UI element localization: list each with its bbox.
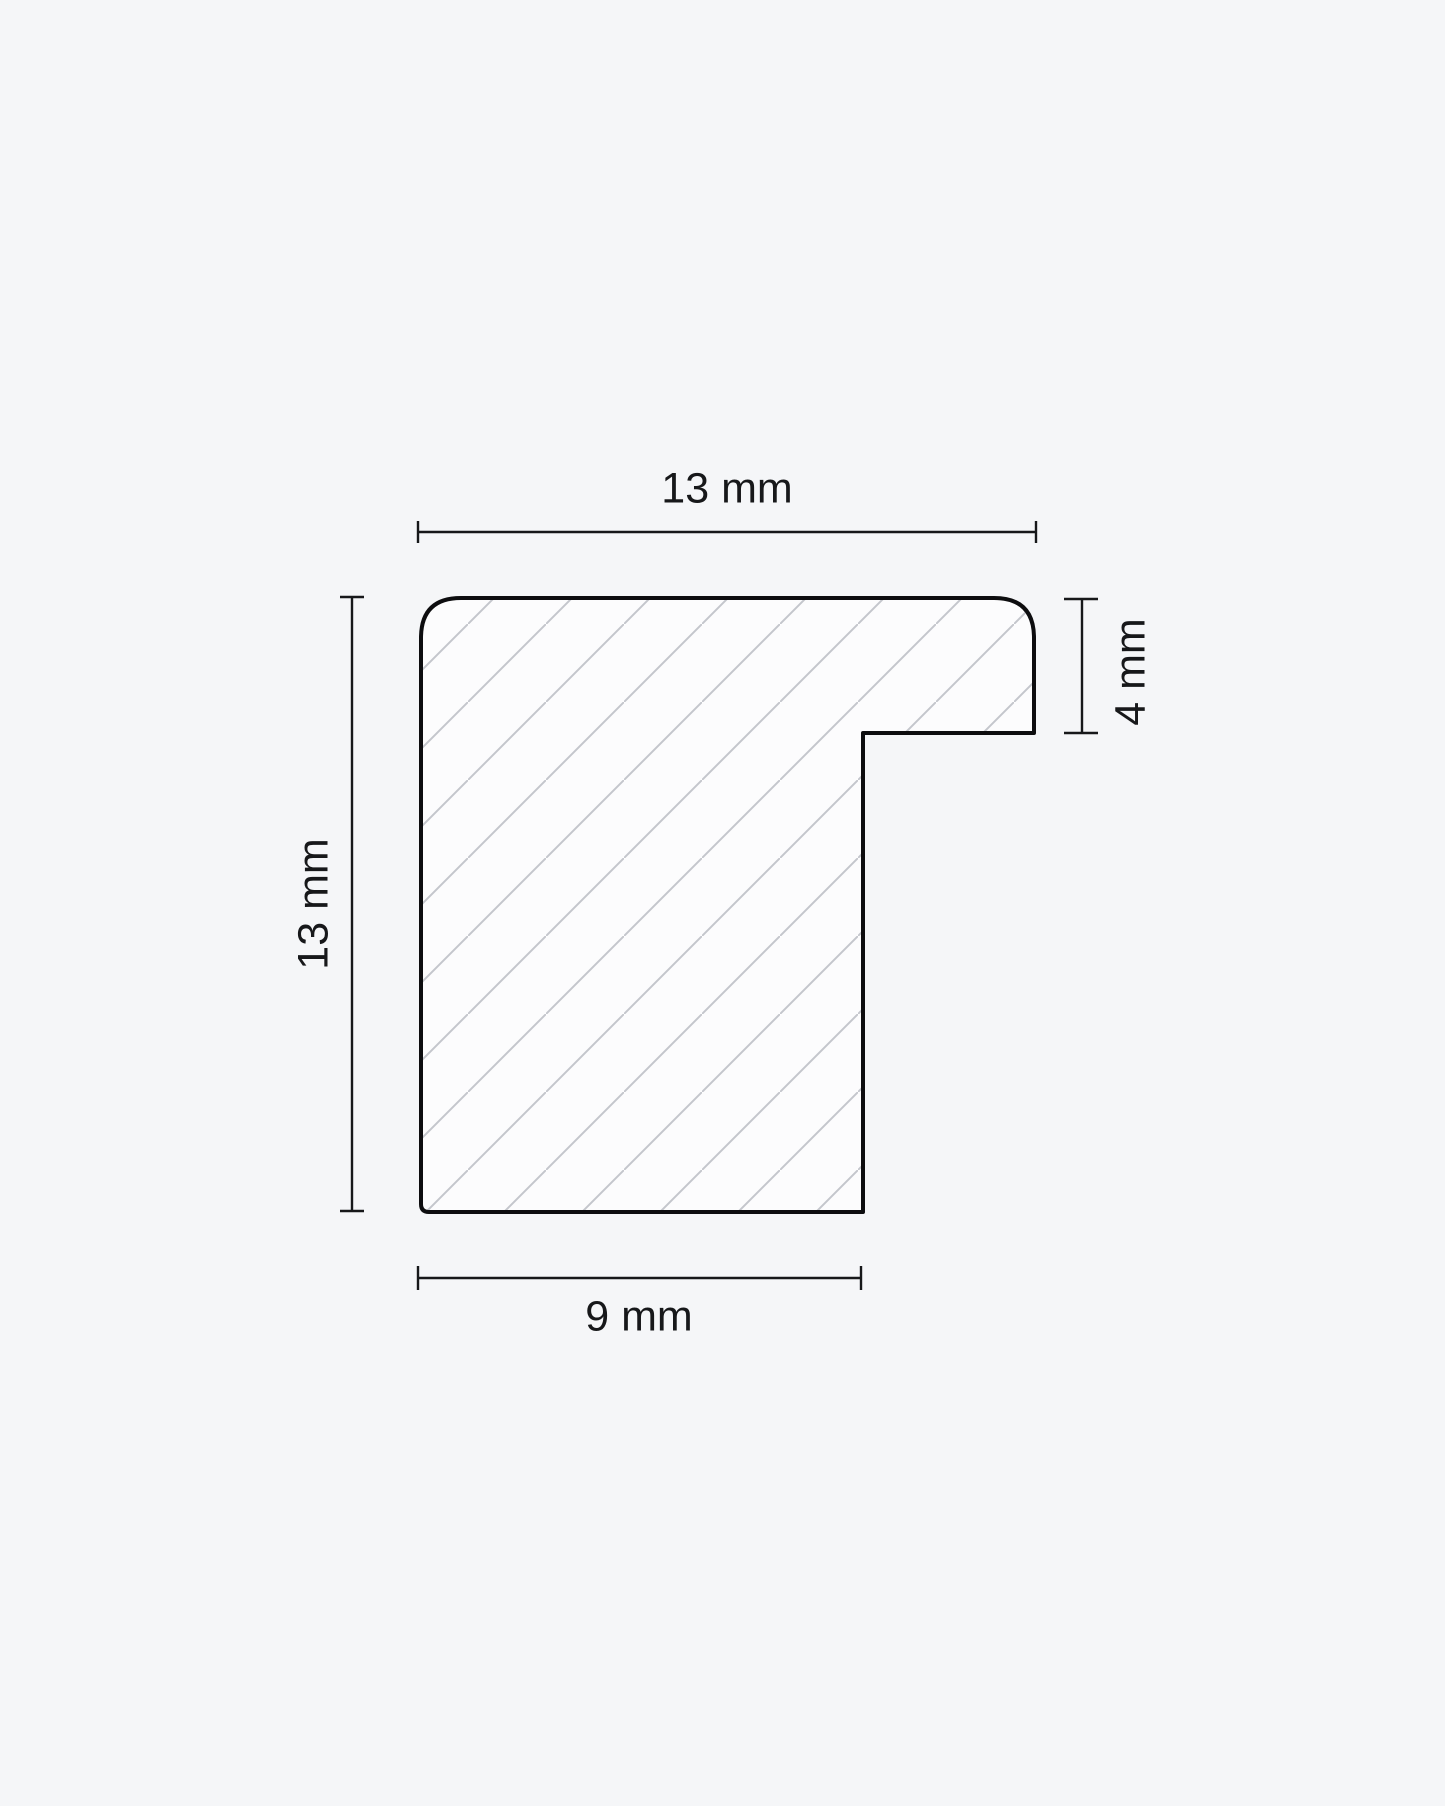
profile-shape-hatching <box>421 598 1034 1212</box>
dimension-lip-height <box>1064 599 1098 733</box>
dim-label-left-height: 13 mm <box>293 838 336 969</box>
dim-label-top-width: 13 mm <box>661 468 792 511</box>
dim-label-lip-height: 4 mm <box>1110 618 1153 726</box>
profile-shape <box>421 598 1034 1212</box>
dimension-bottom-width <box>418 1266 861 1290</box>
dim-label-bottom-width: 9 mm <box>585 1296 693 1339</box>
profile-cross-section-svg <box>0 0 1445 1806</box>
dimension-top-width <box>418 521 1036 543</box>
dimension-left-height <box>340 597 364 1211</box>
frame-profile-technical-drawing: 13 mm 13 mm 4 mm 9 mm <box>0 0 1445 1806</box>
